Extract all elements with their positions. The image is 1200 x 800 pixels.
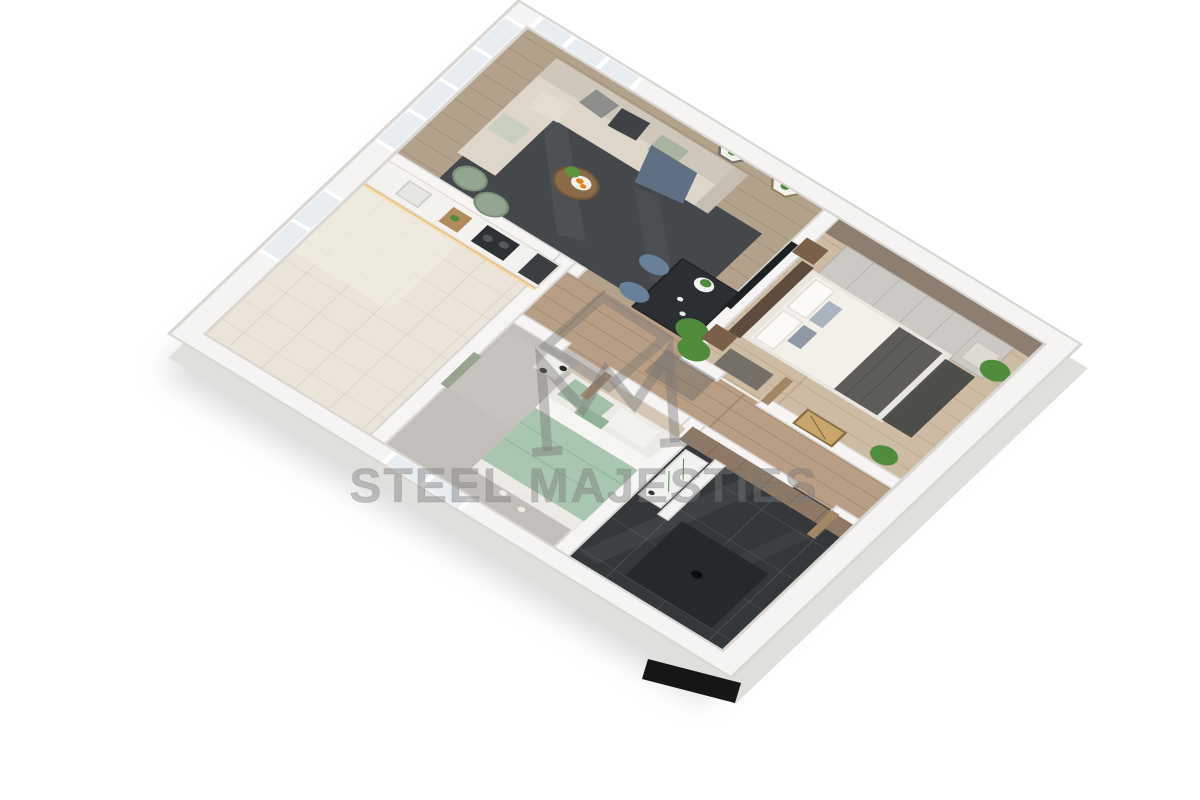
floor-plan-scene: STEEL MAJESTIES bbox=[0, 0, 1200, 800]
watermark-text: STEEL MAJESTIES bbox=[349, 460, 818, 513]
floor-plan-render: STEEL MAJESTIES bbox=[0, 0, 1200, 800]
